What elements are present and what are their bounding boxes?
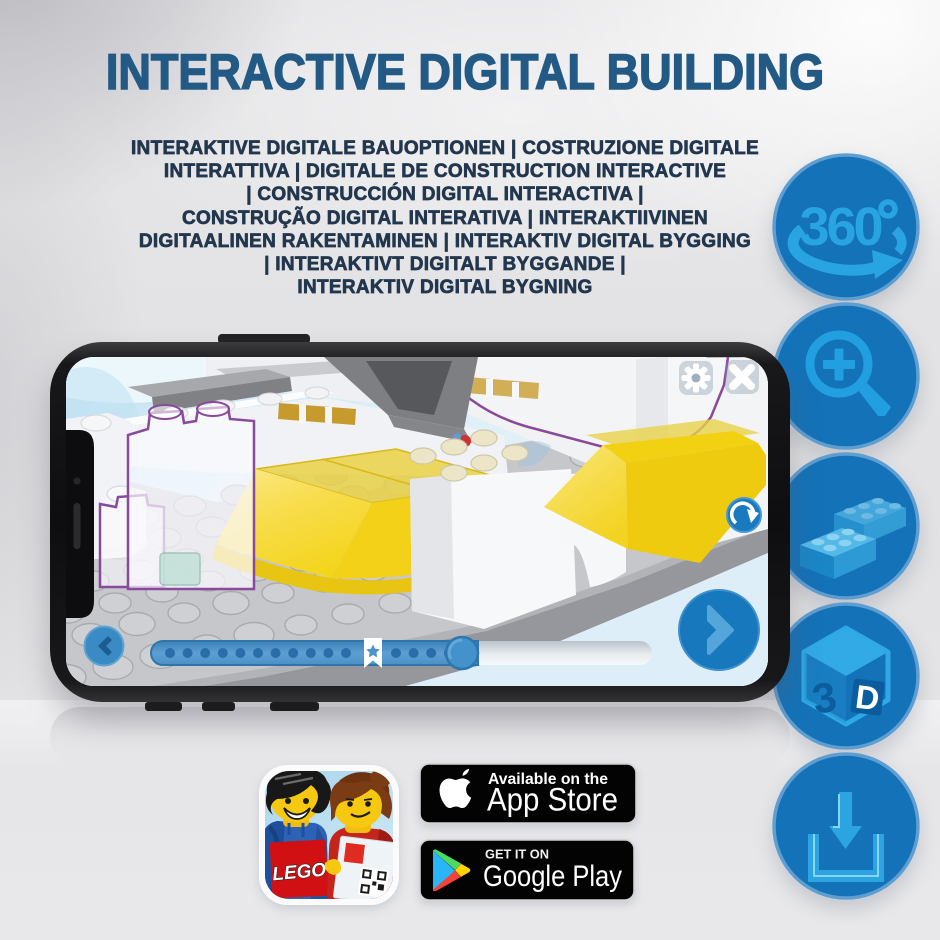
svg-text:App Store: App Store — [487, 782, 618, 818]
svg-text:360: 360 — [799, 197, 881, 257]
svg-text:D: D — [853, 678, 881, 718]
svg-text:Google Play: Google Play — [483, 860, 622, 893]
